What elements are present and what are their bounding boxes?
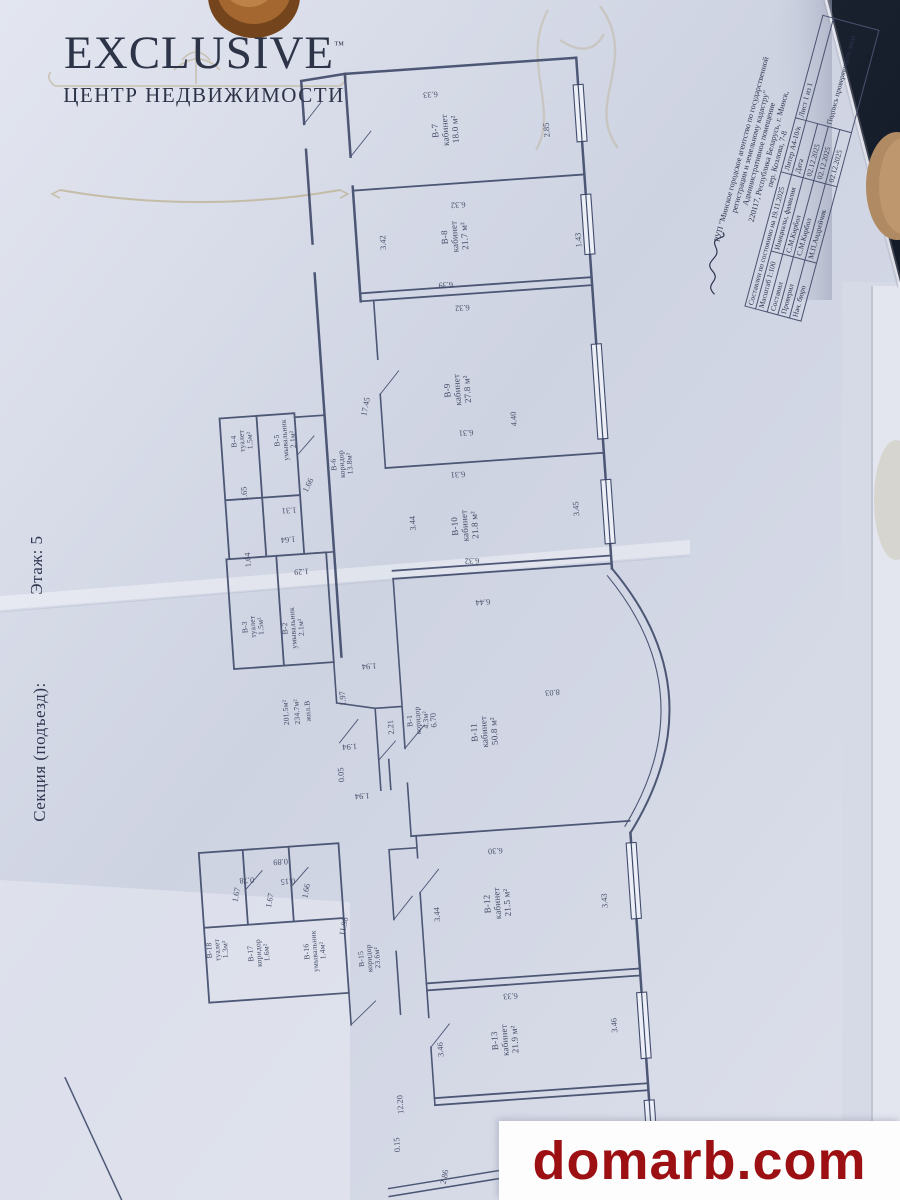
svg-text:50.8 м²: 50.8 м² [488,717,500,746]
dimension-label: 6.32 [455,303,470,313]
dimension-label: 4.40 [509,411,519,426]
dimension-label: 6.33 [503,991,518,1001]
dimension-label: 3.44 [432,906,442,922]
dimension-label: 1.64 [243,551,253,567]
svg-text:1.5м²: 1.5м² [255,617,265,636]
dimension-label: 1.31 [281,505,296,515]
dimension-label: 0.15 [280,876,295,886]
svg-text:18.0 м²: 18.0 м² [449,115,461,144]
section-label: Секция (подъезд): [30,652,50,852]
logo-subtitle: ЦЕНТР НЕДВИЖИМОСТИ [44,83,364,108]
dimension-label: 6.44 [475,597,491,607]
dimension-label: 2.85 [542,122,552,137]
dimension-label: 1.43 [573,232,583,247]
svg-text:201.5м²: 201.5м² [280,699,291,726]
svg-text:21.5 м²: 21.5 м² [501,888,513,917]
dimension-label: 1.94 [354,791,370,801]
total-area-label: 201.5м² 234.7м² жил.В [280,697,313,725]
dimension-label: 12.20 [395,1095,405,1114]
dimension-label: 3.43 [600,893,610,908]
svg-text:жил.В: жил.В [302,700,313,723]
svg-text:13.8м²: 13.8м² [344,452,355,475]
dimension-label: 3.45 [571,501,581,516]
logo-title: EXCLUSIVE™ [44,30,364,77]
dimension-label: 1.94 [361,661,377,671]
dimension-label: 8.03 [545,687,560,697]
dimension-label: 2.21 [386,720,396,735]
svg-text:1.4м²: 1.4м² [317,941,327,960]
svg-text:27.8 м²: 27.8 м² [461,375,473,404]
dimension-label: 3.46 [609,1018,619,1033]
dimension-label: 0.05 [336,767,346,782]
trademark-symbol: ™ [334,40,344,51]
dimension-label: 6.32 [451,200,466,210]
svg-text:2.1м²: 2.1м² [296,618,306,637]
dimension-label: 6.70 [429,713,439,728]
dimension-label: 3.42 [378,235,388,250]
svg-text:1.6м²: 1.6м² [261,943,271,962]
svg-text:21.7 м²: 21.7 м² [458,222,470,251]
agency-logo: EXCLUSIVE™ ЦЕНТР НЕДВИЖИМОСТИ [44,30,364,108]
dimension-label: 1.29 [294,567,309,577]
photographed-floorplan-document: { "branding": { "logo_title": "EXCLUSIVE… [0,0,900,1200]
dimension-label: 0.89 [273,857,288,867]
svg-text:23.6м²: 23.6м² [372,946,383,969]
svg-text:1.3м²: 1.3м² [220,940,230,959]
dimension-label: 6.33 [423,89,438,99]
dimension-label: 3.44 [408,515,418,531]
dimension-label: 0.15 [392,1137,402,1152]
site-watermark: domarb.com [499,1121,900,1200]
svg-text:234.7м²: 234.7м² [291,698,302,725]
dimension-label: 0.78 [239,875,254,885]
svg-text:21.9 м²: 21.9 м² [509,1025,521,1054]
dimension-label: 6.31 [459,428,474,438]
dimension-label: 3.46 [436,1042,446,1057]
svg-text:2.1м²: 2.1м² [288,430,298,449]
svg-text:21.8 м²: 21.8 м² [469,511,481,540]
dimension-label: 1.94 [341,742,357,752]
dimension-label: 1.64 [280,534,296,544]
floor-label: Этаж: 5 [27,500,47,630]
svg-text:1.5м²: 1.5м² [244,431,254,450]
dimension-label: 1.65 [239,486,249,501]
dimension-label: 1.97 [338,691,348,706]
site-watermark-text: domarb.com [532,1130,866,1192]
dimension-label: 6.31 [450,469,465,479]
dimension-label: 6.30 [488,846,503,856]
dimension-label: 6.39 [438,280,453,290]
dimension-label: 6.32 [464,556,479,566]
